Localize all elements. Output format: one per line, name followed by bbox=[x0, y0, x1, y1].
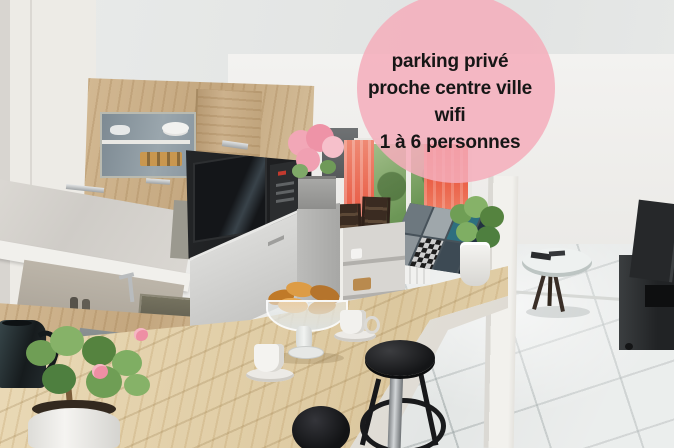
teacup-right bbox=[330, 308, 378, 344]
cup bbox=[254, 344, 284, 372]
apartment-photo: parking privé proche centre ville wifi 1… bbox=[0, 0, 674, 448]
teacup-left bbox=[244, 342, 296, 384]
leaf bbox=[124, 374, 150, 396]
tv-stand-recess bbox=[645, 285, 674, 307]
glass-shelf bbox=[102, 140, 190, 144]
flower-planter bbox=[298, 176, 336, 209]
fridge-handle bbox=[268, 235, 284, 246]
plate-stack bbox=[162, 122, 189, 134]
bar-stool-footrest bbox=[360, 398, 446, 448]
bar-stool-column bbox=[388, 368, 404, 448]
badge-line-centre-ville: proche centre ville bbox=[357, 75, 543, 102]
rose-pot bbox=[28, 408, 120, 448]
leaf bbox=[42, 364, 76, 394]
rose-flower bbox=[92, 364, 108, 379]
badge-line-wifi: wifi bbox=[357, 102, 543, 129]
bar-stool-front-seat bbox=[365, 340, 435, 376]
leaf bbox=[82, 336, 116, 366]
caster-wheel bbox=[625, 343, 633, 350]
leaf bbox=[480, 206, 504, 228]
leaf bbox=[456, 222, 478, 242]
cup-handle bbox=[364, 316, 380, 334]
amber-glasses bbox=[140, 152, 182, 166]
mug bbox=[351, 248, 362, 259]
info-badge: parking privé proche centre ville wifi 1… bbox=[357, 0, 555, 183]
leaf bbox=[292, 164, 308, 178]
leaf bbox=[50, 326, 84, 356]
bar-plant-pot bbox=[460, 242, 490, 286]
glass-display-cabinet bbox=[100, 112, 196, 178]
badge-text: parking privé proche centre ville wifi 1… bbox=[357, 48, 555, 156]
cup bbox=[340, 310, 366, 334]
rose-flower bbox=[134, 328, 148, 341]
microwave-display bbox=[278, 170, 286, 175]
microwave-buttons bbox=[276, 181, 294, 187]
badge-line-parking: parking privé bbox=[357, 48, 543, 75]
badge-line-personnes: 1 à 6 personnes bbox=[357, 129, 543, 156]
bar-stool-left-seat bbox=[292, 406, 350, 448]
leaf bbox=[320, 160, 336, 174]
left-wall-corner bbox=[30, 0, 32, 215]
flower bbox=[322, 136, 344, 158]
dishes bbox=[110, 125, 130, 135]
shelf-items bbox=[353, 277, 371, 291]
